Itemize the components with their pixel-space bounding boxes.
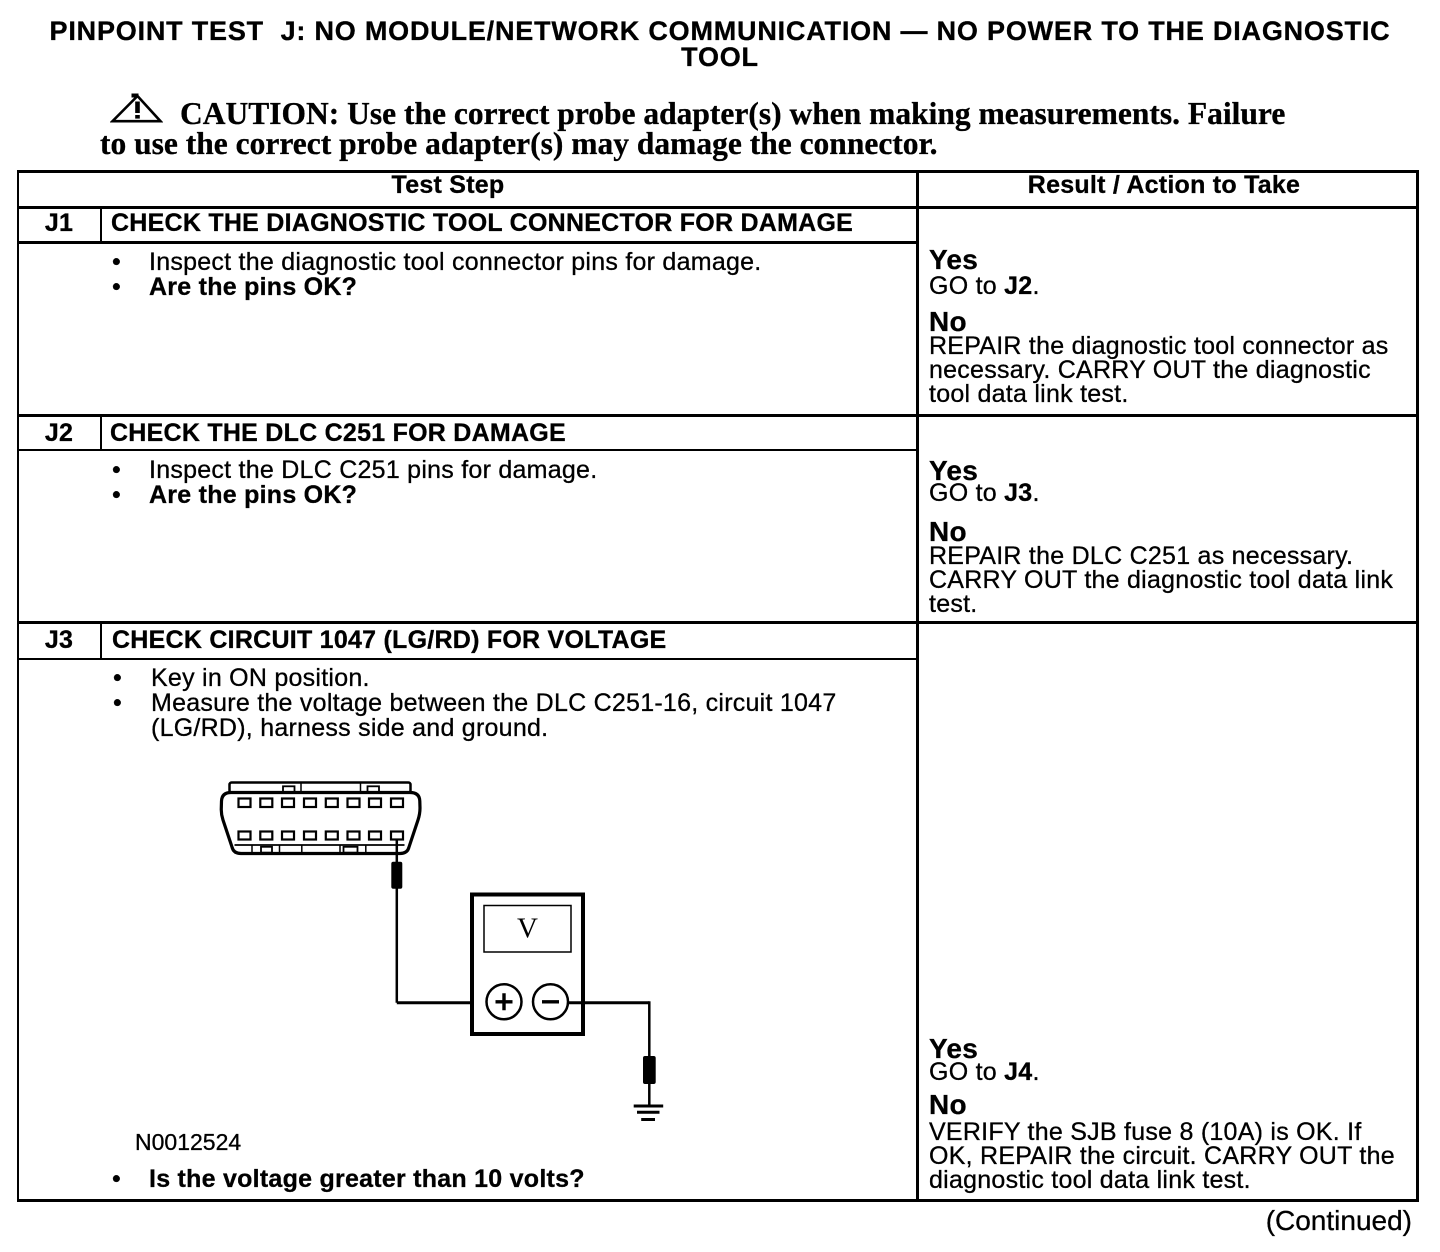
svg-text:V: V	[517, 913, 538, 945]
